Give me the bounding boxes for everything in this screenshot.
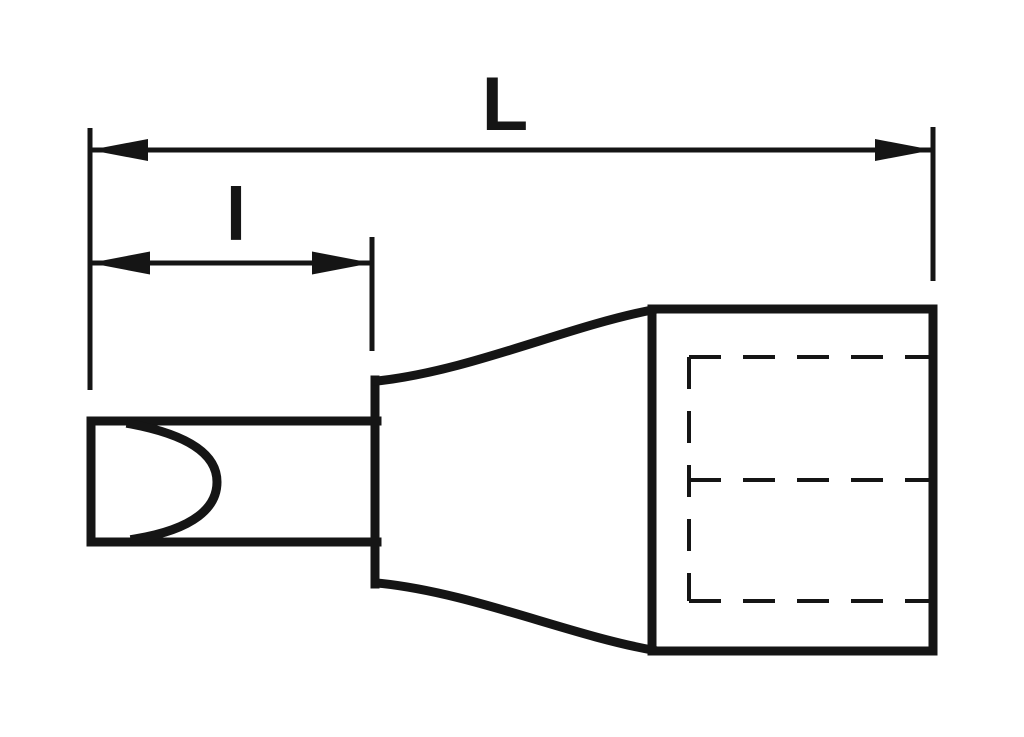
dimension-bit-length: l xyxy=(90,173,372,351)
arrowhead-right-icon xyxy=(875,139,933,161)
blade-grind-curve xyxy=(131,424,217,539)
taper-bottom-curve xyxy=(377,583,652,650)
bit-socket-drawing: L l xyxy=(0,0,1024,737)
label-bit-length: l xyxy=(226,173,247,256)
technical-drawing: L l xyxy=(0,0,1024,737)
arrowhead-right-icon xyxy=(312,252,372,275)
square-drive-hidden-lines xyxy=(689,357,933,601)
bit-blade-outline xyxy=(91,421,377,542)
taper-top-curve xyxy=(377,310,652,381)
label-overall-length: L xyxy=(482,62,528,147)
dimension-overall-length: L xyxy=(90,62,933,390)
arrowhead-left-icon xyxy=(90,252,150,275)
arrowhead-left-icon xyxy=(90,139,148,161)
